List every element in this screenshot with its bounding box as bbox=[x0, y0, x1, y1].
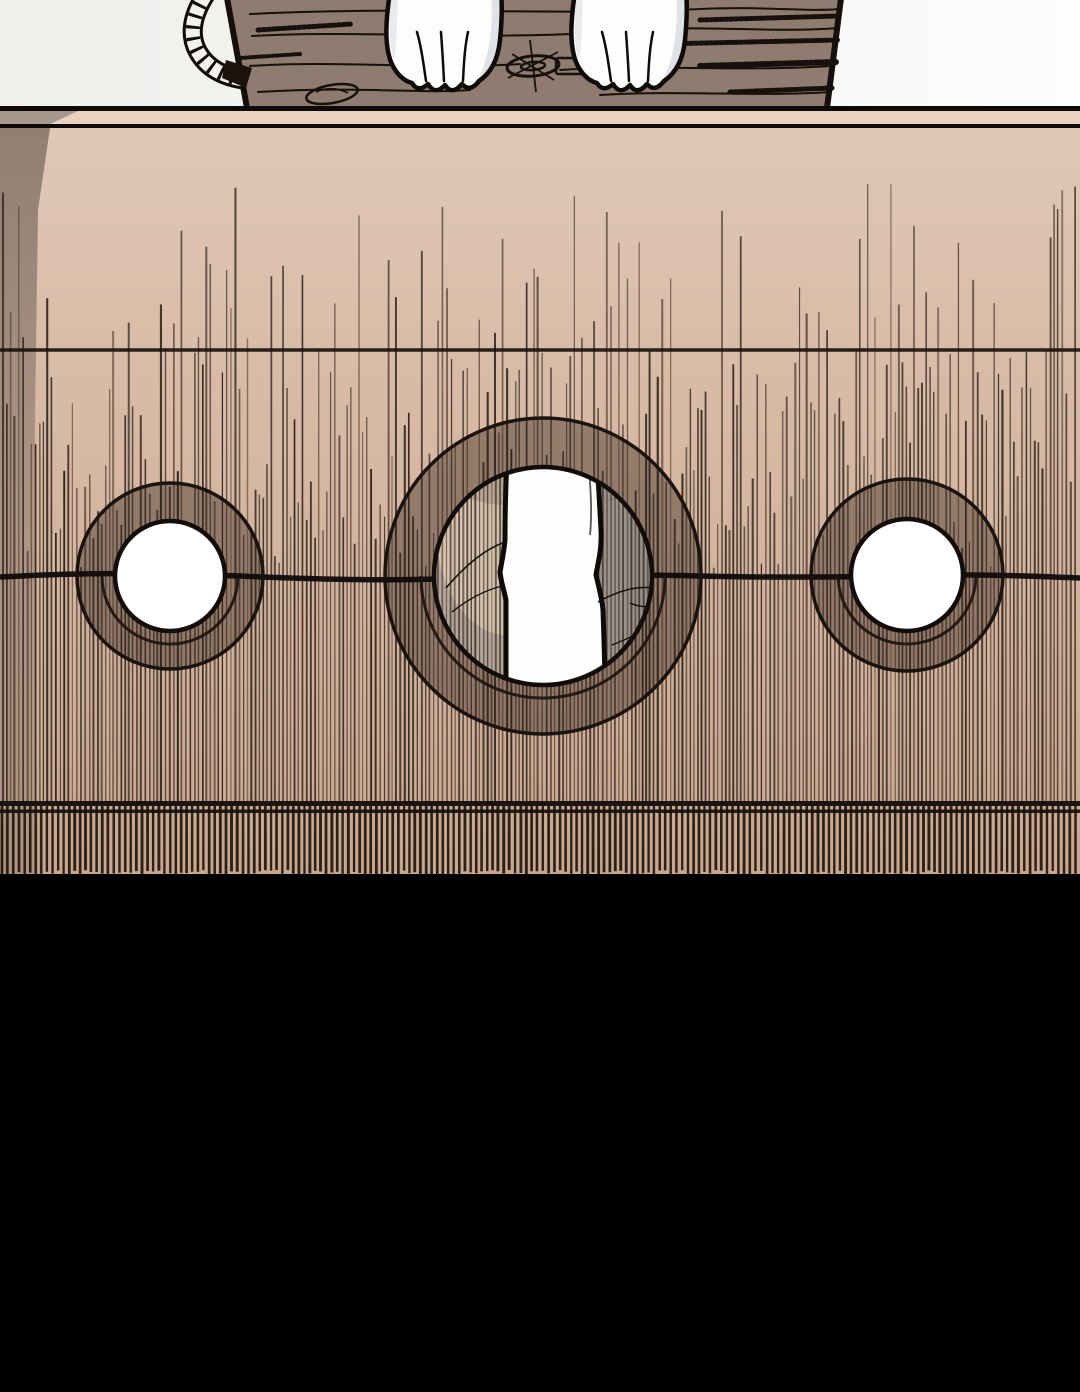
paw bbox=[386, 0, 501, 90]
board-top-outline bbox=[0, 106, 1080, 111]
top-scene bbox=[0, 0, 1080, 106]
comic-panel bbox=[0, 0, 1080, 1392]
lower-line-1 bbox=[0, 801, 1080, 806]
board-strip-outline bbox=[0, 124, 1080, 128]
limb-through-center-hole bbox=[500, 458, 605, 692]
board-top-strip bbox=[0, 111, 1080, 124]
lower-line-2 bbox=[0, 810, 1080, 814]
black-floor bbox=[0, 876, 1080, 1392]
paw bbox=[571, 0, 686, 90]
pillory-board bbox=[0, 106, 1080, 876]
wooden-log bbox=[227, 0, 841, 106]
